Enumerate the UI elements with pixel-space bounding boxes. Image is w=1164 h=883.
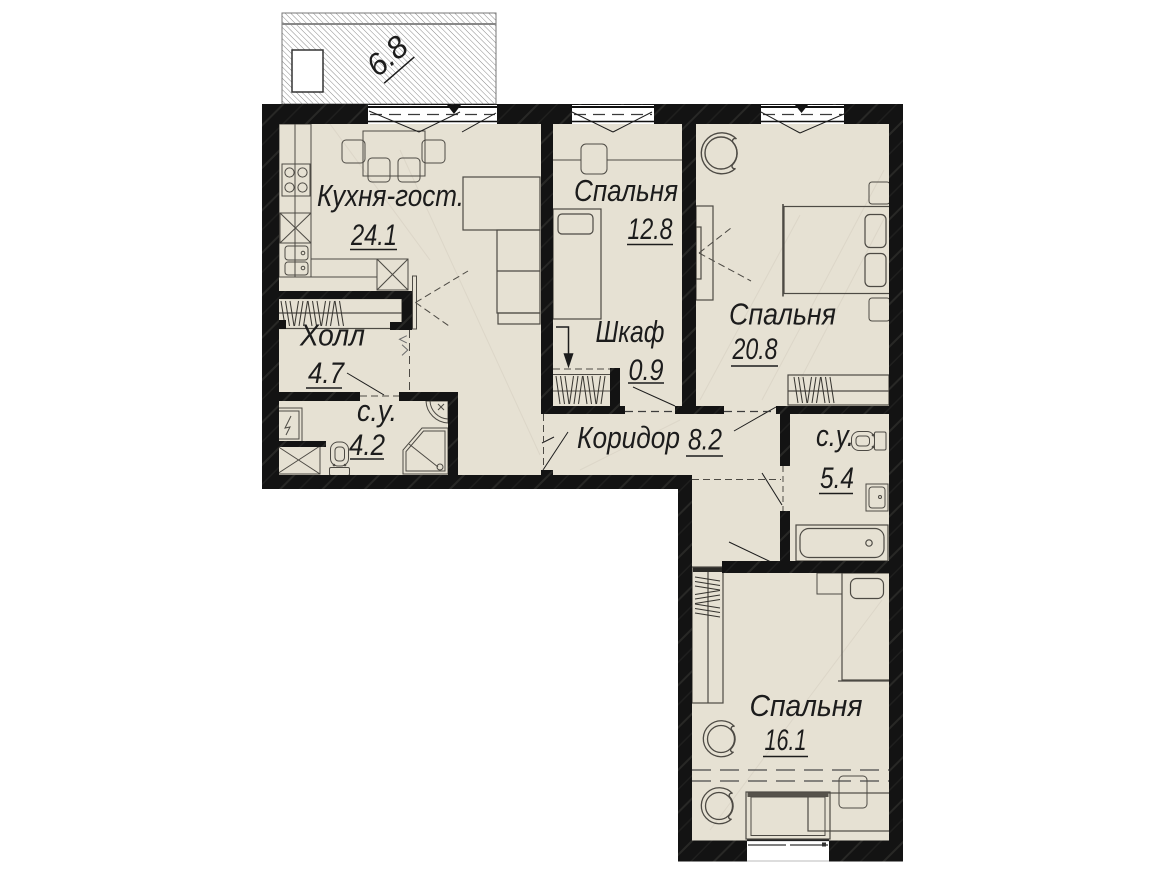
svg-text:Спальня: Спальня [750, 688, 863, 723]
svg-text:Спальня: Спальня [729, 297, 836, 332]
svg-text:20.8: 20.8 [732, 333, 778, 366]
svg-text:Холл: Холл [299, 318, 365, 353]
svg-text:Спальня: Спальня [574, 173, 678, 208]
svg-text:с.у.: с.у. [816, 418, 854, 453]
svg-text:12.8: 12.8 [628, 213, 673, 246]
svg-text:24.1: 24.1 [350, 219, 397, 252]
svg-text:Коридор: Коридор [577, 420, 680, 455]
svg-text:0.9: 0.9 [629, 354, 664, 387]
svg-text:16.1: 16.1 [765, 724, 807, 757]
svg-text:4.7: 4.7 [308, 357, 345, 390]
svg-text:8.2: 8.2 [688, 424, 722, 457]
svg-text:5.4: 5.4 [820, 462, 854, 495]
svg-text:Кухня-гост.: Кухня-гост. [317, 178, 464, 213]
svg-text:Шкаф: Шкаф [596, 314, 665, 349]
svg-text:с.у.: с.у. [357, 393, 397, 428]
svg-text:4.2: 4.2 [349, 429, 385, 462]
